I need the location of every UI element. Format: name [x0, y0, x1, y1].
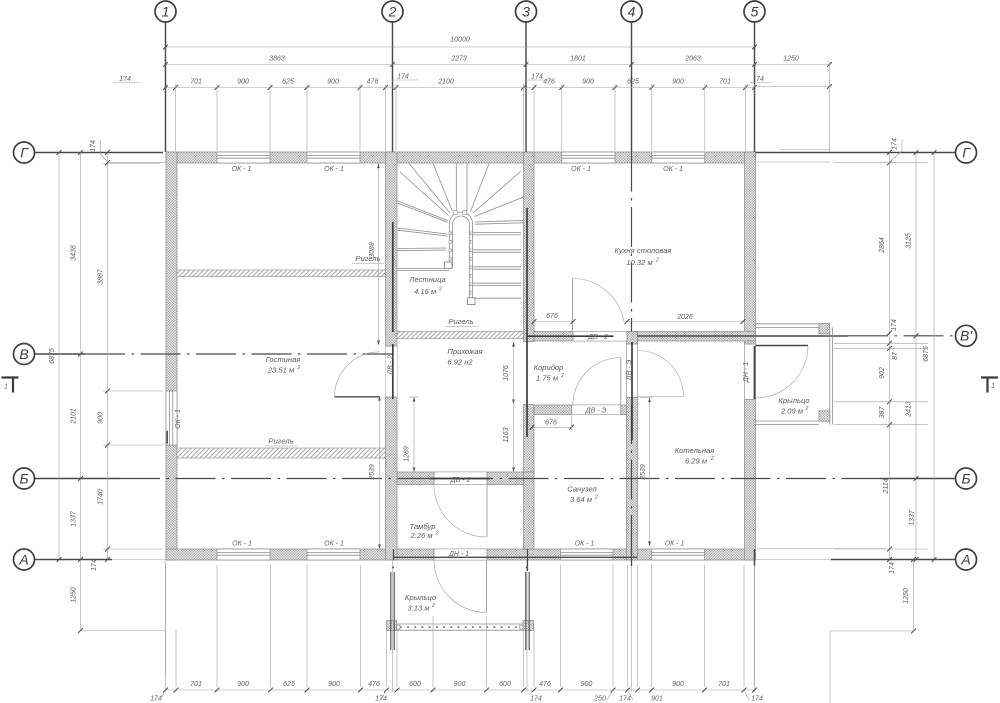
svg-text:6.29 м: 6.29 м [685, 457, 708, 466]
svg-text:5: 5 [751, 3, 759, 19]
svg-text:Санузел: Санузел [567, 485, 597, 494]
svg-text:1289: 1289 [404, 446, 411, 462]
svg-text:600: 600 [499, 681, 511, 688]
svg-text:900: 900 [237, 681, 249, 688]
svg-text:2: 2 [297, 365, 301, 371]
svg-text:3: 3 [522, 3, 530, 19]
svg-text:Крыльцо: Крыльцо [405, 593, 436, 602]
svg-text:2: 2 [435, 531, 439, 537]
svg-text:701: 701 [718, 681, 730, 688]
svg-text:ДВ - 2: ДВ - 2 [387, 355, 394, 376]
svg-text:174: 174 [751, 696, 763, 703]
svg-text:Ригель: Ригель [355, 254, 380, 263]
svg-text:ДН - 1: ДН - 1 [448, 551, 469, 558]
svg-text:Ригель: Ригель [448, 317, 473, 326]
svg-text:174: 174 [90, 140, 97, 152]
svg-text:2101: 2101 [71, 408, 78, 425]
svg-text:2100: 2100 [437, 79, 454, 86]
svg-text:ОК - 1: ОК - 1 [571, 166, 591, 173]
svg-text:174: 174 [119, 76, 131, 83]
svg-text:2: 2 [710, 456, 714, 462]
svg-text:476: 476 [367, 79, 379, 86]
svg-text:Котельная: Котельная [675, 446, 715, 455]
svg-text:900: 900 [672, 681, 684, 688]
svg-text:2273: 2273 [450, 56, 467, 63]
svg-text:3.64 м: 3.64 м [570, 495, 593, 504]
svg-text:1337: 1337 [71, 510, 78, 527]
svg-text:2864: 2864 [879, 237, 886, 254]
svg-text:676: 676 [545, 420, 557, 427]
svg-text:ОК - 1: ОК - 1 [663, 166, 683, 173]
svg-text:4: 4 [628, 3, 636, 19]
svg-text:А: А [960, 551, 970, 567]
svg-text:1250: 1250 [783, 56, 799, 63]
svg-text:174: 174 [150, 696, 162, 703]
svg-text:625: 625 [282, 79, 294, 86]
svg-text:174: 174 [531, 74, 543, 81]
svg-text:Прихожая: Прихожая [447, 347, 482, 356]
svg-text:625: 625 [627, 79, 639, 86]
svg-text:ДВ - 2: ДВ - 2 [450, 477, 471, 484]
svg-text:2539: 2539 [640, 464, 647, 481]
svg-text:Тамбур: Тамбур [409, 522, 435, 531]
svg-text:701: 701 [719, 79, 731, 86]
svg-text:ДВ - Э: ДВ - Э [585, 408, 607, 415]
svg-text:ОК - 1: ОК - 1 [232, 166, 252, 173]
svg-text:476: 476 [539, 681, 551, 688]
svg-text:476: 476 [368, 681, 380, 688]
svg-text:ОК - 1: ОК - 1 [324, 541, 344, 548]
svg-text:174: 174 [375, 696, 387, 703]
svg-text:2539: 2539 [369, 464, 376, 481]
svg-text:900: 900 [98, 412, 105, 424]
svg-text:250: 250 [593, 696, 606, 703]
svg-text:900: 900 [237, 79, 249, 86]
svg-text:ДВ - Э: ДВ - Э [627, 360, 634, 382]
svg-text:902: 902 [879, 367, 886, 379]
svg-text:ДН - 1: ДН - 1 [743, 362, 750, 383]
svg-text:Коридор: Коридор [534, 363, 564, 372]
svg-text:1: 1 [162, 3, 170, 19]
svg-text:2: 2 [438, 287, 442, 293]
svg-text:1801: 1801 [570, 56, 586, 63]
svg-text:6875: 6875 [49, 348, 56, 364]
svg-text:Б: Б [19, 470, 28, 486]
svg-text:1076: 1076 [503, 365, 510, 381]
svg-text:2114: 2114 [883, 478, 890, 494]
svg-text:600: 600 [409, 681, 421, 688]
svg-text:900: 900 [327, 79, 339, 86]
svg-text:1: 1 [4, 384, 8, 391]
svg-text:625: 625 [283, 681, 295, 688]
svg-text:1163: 1163 [503, 427, 510, 442]
svg-text:2: 2 [805, 406, 809, 412]
svg-text:А: А [18, 551, 28, 567]
svg-text:3887: 3887 [98, 268, 105, 285]
svg-text:900: 900 [581, 681, 593, 688]
svg-text:1740: 1740 [98, 489, 105, 505]
svg-text:2: 2 [655, 258, 659, 264]
svg-text:174: 174 [891, 319, 898, 331]
svg-text:174: 174 [397, 74, 409, 81]
svg-text:676: 676 [546, 313, 558, 320]
svg-text:174: 174 [889, 562, 896, 574]
svg-text:10000: 10000 [450, 37, 470, 44]
svg-text:1.75 м: 1.75 м [536, 374, 559, 383]
svg-text:2063: 2063 [684, 56, 701, 63]
svg-text:3125: 3125 [906, 233, 913, 249]
svg-text:174: 174 [530, 696, 542, 703]
svg-text:В: В [19, 346, 28, 362]
svg-text:900: 900 [672, 79, 684, 86]
svg-text:2: 2 [594, 495, 598, 501]
svg-text:2: 2 [431, 603, 435, 609]
svg-text:476: 476 [543, 79, 555, 86]
svg-text:ОК - 1: ОК - 1 [175, 409, 182, 429]
svg-text:Ригель: Ригель [268, 437, 293, 446]
svg-text:701: 701 [190, 79, 202, 86]
svg-text:ОК - 1: ОК - 1 [232, 541, 252, 548]
svg-text:3.13 м: 3.13 м [407, 604, 430, 613]
svg-text:1: 1 [991, 383, 995, 390]
svg-text:Гостиная: Гостиная [266, 355, 301, 364]
svg-text:87: 87 [892, 351, 899, 360]
svg-text:74: 74 [756, 76, 764, 83]
svg-text:3863: 3863 [269, 56, 285, 63]
svg-text:Лестница: Лестница [408, 275, 446, 284]
svg-text:6.92 н2: 6.92 н2 [447, 358, 473, 367]
svg-text:2.09 м: 2.09 м [780, 407, 804, 416]
svg-text:174: 174 [619, 696, 631, 703]
svg-text:В': В' [960, 328, 973, 344]
svg-text:2.26 м: 2.26 м [409, 531, 433, 540]
svg-text:ОК - 1: ОК - 1 [324, 166, 344, 173]
svg-text:2026: 2026 [676, 314, 693, 321]
svg-text:900: 900 [328, 681, 340, 688]
svg-text:901: 901 [651, 696, 663, 703]
svg-text:2: 2 [560, 373, 564, 379]
svg-text:2: 2 [388, 3, 397, 19]
svg-text:1337: 1337 [909, 509, 916, 526]
svg-text:701: 701 [190, 681, 202, 688]
svg-text:2413: 2413 [906, 401, 913, 418]
svg-text:Крыльцо: Крыльцо [778, 396, 809, 405]
svg-text:1250: 1250 [903, 588, 910, 604]
svg-text:900: 900 [454, 681, 466, 688]
svg-text:4.16 м: 4.16 м [414, 287, 437, 296]
svg-text:3438: 3438 [71, 245, 78, 261]
svg-text:Б: Б [961, 470, 970, 486]
svg-text:10.32 м: 10.32 м [626, 258, 653, 267]
svg-text:ОК - 1: ОК - 1 [575, 541, 595, 548]
svg-text:174: 174 [892, 138, 899, 150]
svg-text:ОК - 1: ОК - 1 [665, 541, 685, 548]
svg-text:900: 900 [582, 79, 594, 86]
svg-text:Кухня столовая: Кухня столовая [614, 246, 671, 255]
svg-text:ДВ - 2: ДВ - 2 [587, 334, 608, 341]
svg-text:1250: 1250 [71, 587, 78, 603]
svg-text:23.51 м: 23.51 м [267, 366, 295, 375]
svg-text:174: 174 [91, 559, 98, 571]
svg-text:387: 387 [879, 406, 886, 419]
